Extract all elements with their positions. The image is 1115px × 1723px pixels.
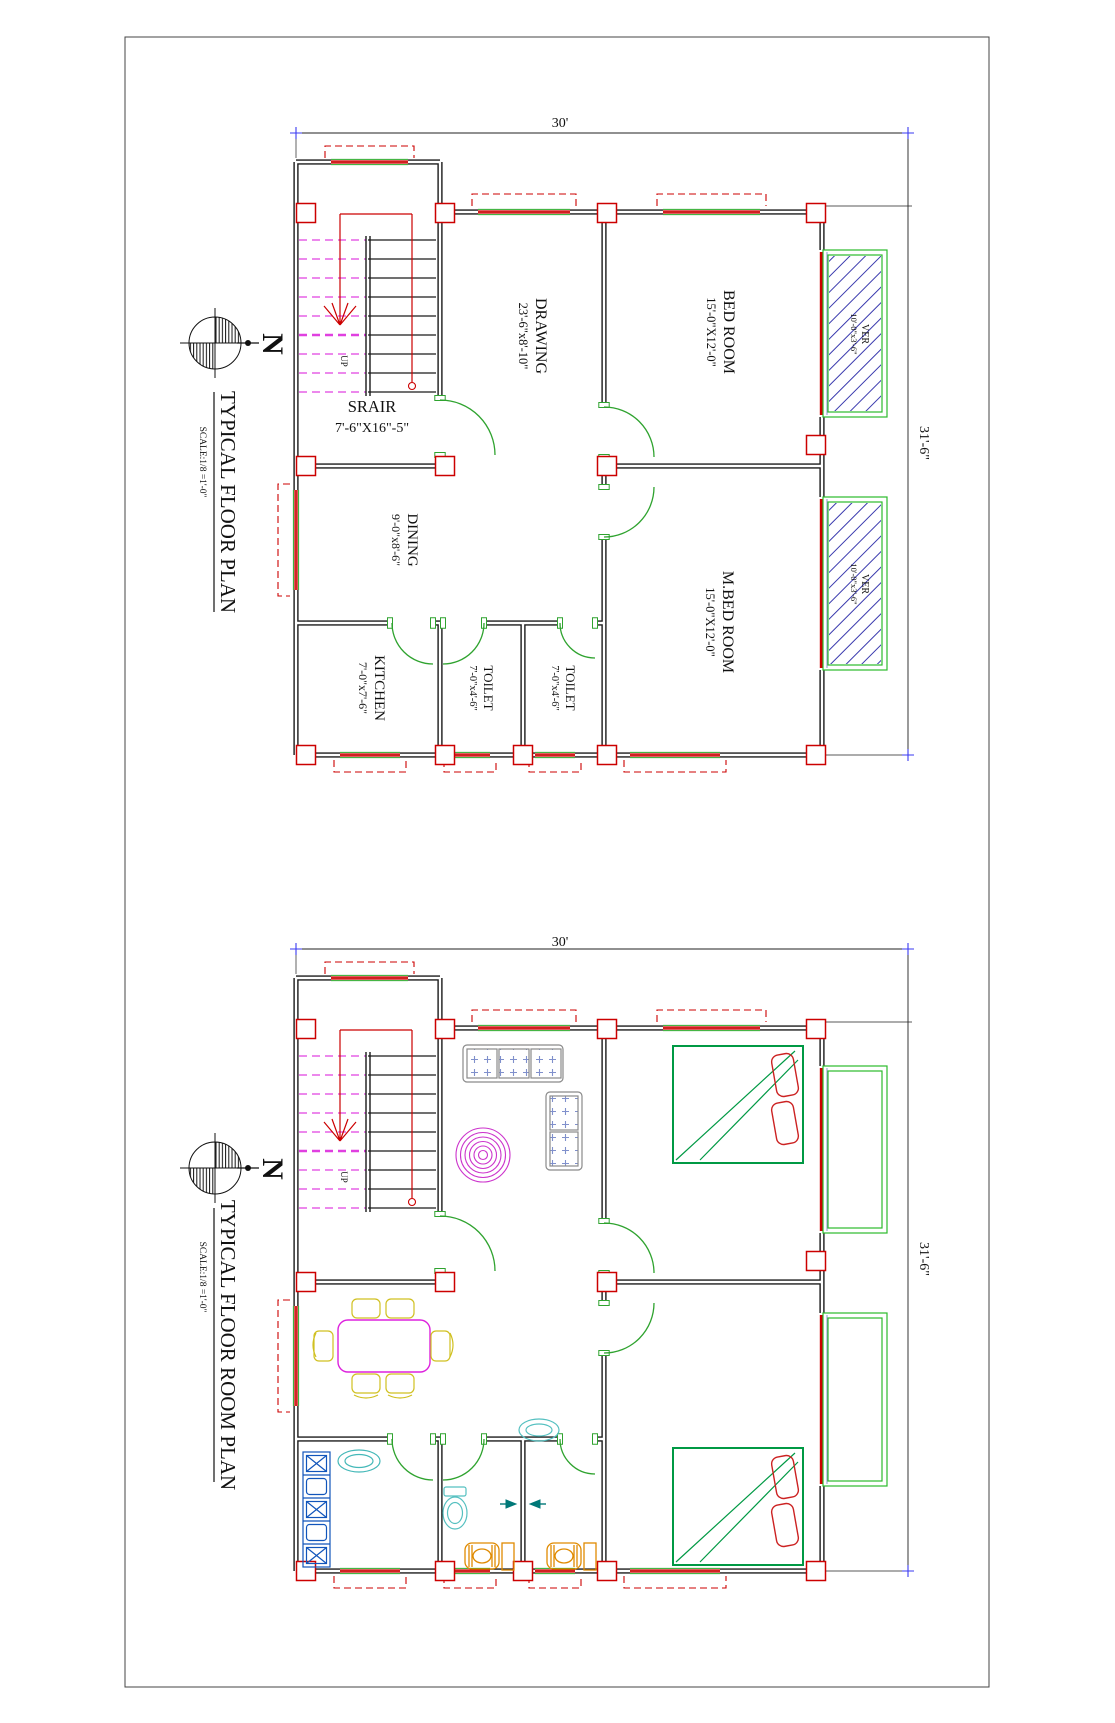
north-arrow-icon	[180, 308, 259, 378]
svg-text:KITCHEN: KITCHEN	[371, 655, 387, 721]
room-label-bedroom: BED ROOM 15'-0"X12'-0"	[704, 290, 737, 374]
plan-title: TYPICAL FLOOR ROOM PLAN	[216, 1200, 240, 1490]
plan-title: TYPICAL FLOOR PLAN	[216, 391, 240, 613]
cad-canvas: N TYPICAL FLOOR PLAN SCALE:1/8 =1'-0" 30…	[0, 0, 1115, 1723]
north-label: N	[256, 333, 289, 355]
svg-text:15'-0"X12'-0": 15'-0"X12'-0"	[704, 297, 718, 367]
bed-1	[673, 1046, 803, 1163]
svg-text:7'-0"x4'-6": 7'-0"x4'-6"	[549, 665, 560, 711]
svg-text:TOILET: TOILET	[563, 665, 578, 710]
kitchen-counter	[303, 1452, 330, 1567]
stair-up-label: UP	[339, 1171, 349, 1183]
room-label-drawing: DRAWING 23'-6"x8'-10"	[516, 298, 549, 374]
room-label-dining: DINING 9'-0"x8'-6"	[389, 513, 420, 566]
svg-text:TOILET: TOILET	[481, 665, 496, 710]
toilet-commode	[443, 1487, 467, 1529]
room-label-toilet-2: TOILET 7'-0"x4'-6"	[549, 665, 578, 711]
room-label-toilet-1: TOILET 7'-0"x4'-6"	[467, 665, 496, 711]
rug	[456, 1128, 510, 1182]
svg-text:15'-0"X12'-0": 15'-0"X12'-0"	[703, 587, 717, 657]
floor-plan-bottom: N TYPICAL FLOOR ROOM PLAN SCALE:1/8 =1'-…	[180, 935, 931, 1588]
dining-set	[313, 1299, 453, 1398]
svg-text:M.BED ROOM: M.BED ROOM	[719, 571, 736, 673]
drawing-sheet: N TYPICAL FLOOR PLAN SCALE:1/8 =1'-0" 30…	[0, 0, 1115, 1723]
stair-up-label: UP	[339, 355, 349, 367]
svg-text:9'-0"x8'-6": 9'-0"x8'-6"	[389, 514, 403, 566]
kitchen-sink	[338, 1450, 380, 1472]
north-arrow-icon	[180, 1133, 259, 1203]
svg-text:10'-0"x3'-6": 10'-0"x3'-6"	[849, 313, 859, 354]
room-label-srair: SRAIR	[348, 397, 397, 416]
svg-text:7'-0"x7'-6": 7'-0"x7'-6"	[356, 662, 370, 714]
dimension-width: 30'	[552, 116, 569, 131]
svg-text:23'-6"x8'-10": 23'-6"x8'-10"	[516, 303, 530, 370]
dimension-height: 31'-6"	[916, 426, 931, 460]
svg-text:DINING: DINING	[404, 513, 420, 566]
svg-text:VER: VER	[859, 324, 870, 344]
svg-text:10'-0"x3'-6": 10'-0"x3'-6"	[849, 563, 859, 604]
room-label-kitchen: KITCHEN 7'-0"x7'-6"	[356, 655, 387, 721]
svg-text:DRAWING: DRAWING	[532, 298, 549, 374]
north-label: N	[256, 1158, 289, 1180]
svg-text:VER: VER	[859, 574, 870, 594]
sofa-2seat	[546, 1092, 582, 1170]
svg-text:7'-0"x4'-6": 7'-0"x4'-6"	[467, 665, 478, 711]
sofa-3seat	[463, 1045, 563, 1082]
svg-text:BED ROOM: BED ROOM	[720, 290, 737, 374]
plan-scale: SCALE:1/8 =1'-0"	[197, 427, 207, 498]
dimension-height: 31'-6"	[916, 1242, 931, 1276]
plan-title-block: TYPICAL FLOOR PLAN SCALE:1/8 =1'-0"	[197, 391, 240, 613]
plan-title-block: TYPICAL FLOOR ROOM PLAN SCALE:1/8 =1'-0"	[197, 1200, 240, 1490]
plan-scale: SCALE:1/8 =1'-0"	[197, 1242, 207, 1313]
dimension-width: 30'	[552, 935, 569, 950]
building-shell-bottom	[278, 943, 914, 1588]
room-label-mbedroom: M.BED ROOM 15'-0"X12'-0"	[703, 571, 736, 673]
room-dims-srair: 7'-6"X16"-5"	[335, 421, 409, 436]
floor-plan-top: N TYPICAL FLOOR PLAN SCALE:1/8 =1'-0" 30…	[180, 116, 931, 772]
bed-2	[673, 1448, 803, 1565]
